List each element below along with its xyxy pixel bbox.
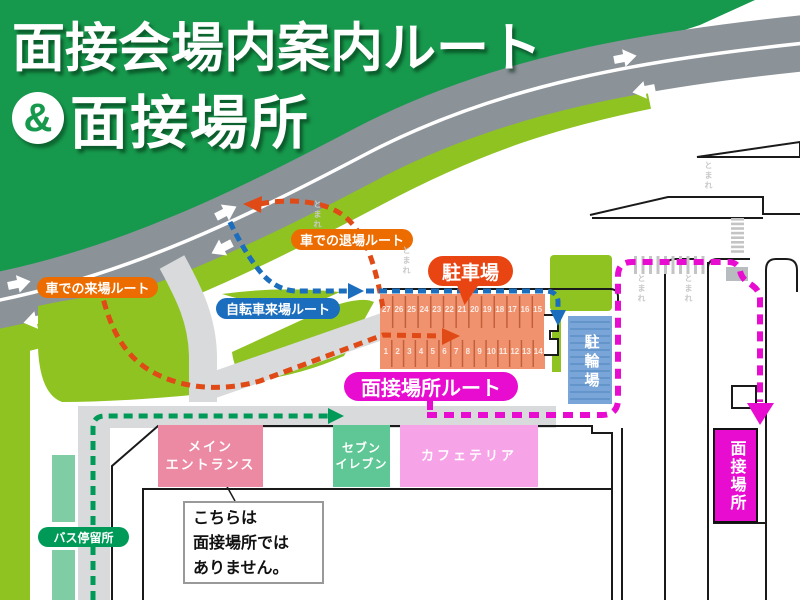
parking-stall-number: 9 xyxy=(474,347,486,356)
parking-stall-number: 18 xyxy=(493,305,506,314)
parking-stall-number: 21 xyxy=(456,305,469,314)
main-entrance-line1: メイン xyxy=(188,438,233,456)
road-marking-stop: とまれ xyxy=(684,274,692,304)
notice-line3: ありません。 xyxy=(193,556,314,581)
parking-numbers-top-row: 27262524232221201918171615 xyxy=(380,305,544,314)
parking-stall-number: 20 xyxy=(468,305,481,314)
parking-stall-number: 10 xyxy=(485,347,497,356)
parking-numbers-bottom-row: 1234567891011121314 xyxy=(380,347,544,356)
main-entrance-line2: エントランス xyxy=(166,456,256,474)
road-marking-stop: とまれ xyxy=(704,161,712,191)
parking-stall-number: 22 xyxy=(443,305,456,314)
parking-stall-number: 1 xyxy=(380,347,392,356)
parking-stall-number: 3 xyxy=(403,347,415,356)
parking-stall-number: 7 xyxy=(450,347,462,356)
parking-stall-number: 17 xyxy=(506,305,519,314)
parking-stall-number: 2 xyxy=(392,347,404,356)
venue-map: 面接会場内案内ルート & 面接場所 車での退場ルート 車での来場ルート 自転車来… xyxy=(0,0,800,600)
road-marking-stop: とまれ xyxy=(402,246,410,276)
ampersand-badge: & xyxy=(12,92,64,144)
notice-line2: 面接場所では xyxy=(193,531,314,556)
road-marking-stop: とまれ xyxy=(313,200,321,230)
block-seven-eleven: セブン イレブン xyxy=(333,425,390,487)
parking-stall-number: 6 xyxy=(439,347,451,356)
label-bicycle-route: 自転車来場ルート xyxy=(216,298,340,319)
label-car-arrival-route: 車での来場ルート xyxy=(37,277,158,298)
label-interview-route: 面接場所ルート xyxy=(344,372,518,401)
parking-stall-number: 14 xyxy=(532,347,544,356)
page-title-line2: & 面接場所 xyxy=(12,76,310,160)
label-parking-lot: 駐車場 xyxy=(428,256,513,286)
parking-stall-number: 8 xyxy=(462,347,474,356)
label-car-exit-route: 車での退場ルート xyxy=(291,229,413,250)
cafeteria-label: カフェテリア xyxy=(421,447,517,465)
seven-eleven-line1: セブン xyxy=(342,440,381,456)
label-interview-place: 面接場所 xyxy=(713,428,758,523)
road-marking-stop: とまれ xyxy=(637,274,645,304)
page-title-line2-text: 面接場所 xyxy=(70,76,310,160)
label-bus-stop: バス停留所 xyxy=(38,527,129,547)
parking-stall-number: 11 xyxy=(497,347,509,356)
notice-line1: こちらは xyxy=(193,506,314,531)
left-lime-strip xyxy=(0,328,30,600)
parking-stall-number: 4 xyxy=(415,347,427,356)
parking-stall-number: 23 xyxy=(430,305,443,314)
parking-stall-number: 26 xyxy=(393,305,406,314)
parking-stall-number: 19 xyxy=(481,305,494,314)
parking-stall-number: 5 xyxy=(427,347,439,356)
parking-stall-number: 16 xyxy=(519,305,532,314)
parking-stall-number: 24 xyxy=(418,305,431,314)
label-bike-parking: 駐輪場 xyxy=(577,324,605,400)
page-title-line1: 面接会場内案内ルート xyxy=(12,6,542,82)
ampersand-glyph: & xyxy=(24,96,53,141)
parking-stall-number: 27 xyxy=(380,305,393,314)
seven-eleven-line2: イレブン xyxy=(335,456,387,472)
parking-stall-number: 25 xyxy=(405,305,418,314)
notice-box: こちらは 面接場所では ありません。 xyxy=(183,501,324,584)
parking-stall-number: 13 xyxy=(521,347,533,356)
parking-stall-number: 12 xyxy=(509,347,521,356)
block-main-entrance: メイン エントランス xyxy=(158,425,263,487)
parking-stall-number: 15 xyxy=(531,305,544,314)
crosswalk-vertical xyxy=(731,218,744,253)
block-cafeteria: カフェテリア xyxy=(400,425,538,487)
